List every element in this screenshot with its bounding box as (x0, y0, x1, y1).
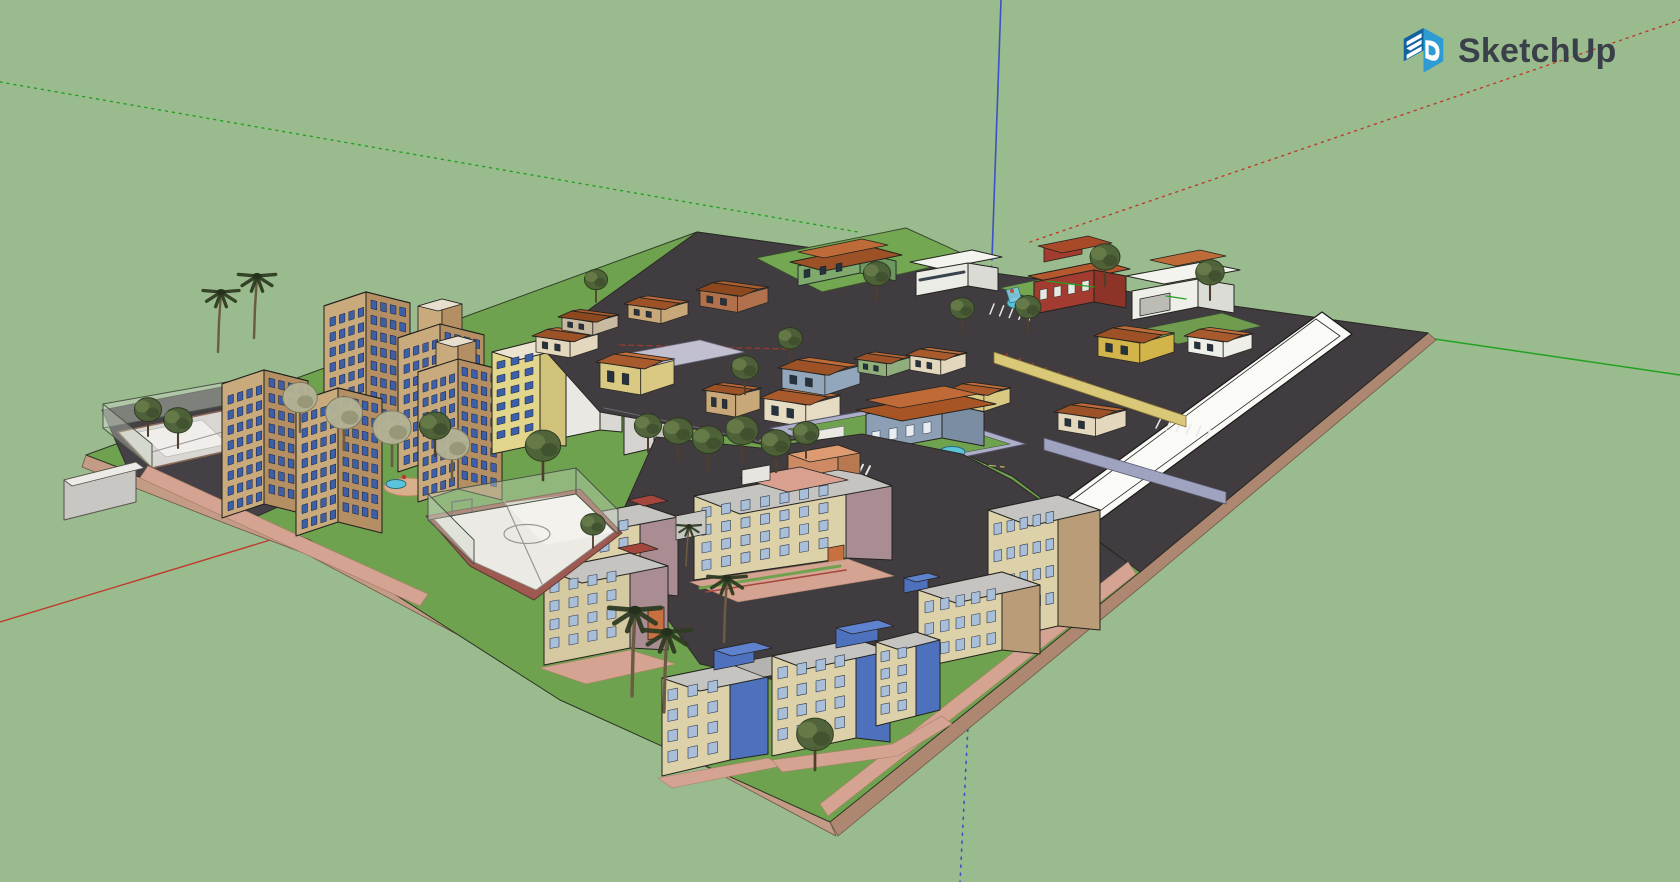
tower-windows (353, 490, 359, 500)
tree-shade (146, 408, 159, 418)
tower-windows (472, 473, 478, 483)
block-windows (668, 688, 678, 701)
block-windows (780, 544, 789, 556)
block-windows (994, 522, 1002, 535)
tower-windows (269, 378, 275, 388)
block-windows (569, 596, 578, 608)
block-windows (800, 541, 809, 553)
tree-shade (1026, 305, 1038, 315)
tower-windows (371, 330, 377, 340)
block-windows (569, 633, 578, 645)
tower-windows (423, 397, 428, 407)
tower-windows (302, 473, 308, 483)
tower-windows (449, 403, 454, 413)
block-windows (702, 541, 711, 553)
tower-windows (288, 474, 294, 484)
tower-windows (330, 347, 336, 357)
tower-windows (339, 359, 345, 369)
house-window (568, 322, 573, 328)
house-window (707, 296, 713, 304)
block-windows (1033, 514, 1041, 527)
block-windows (702, 559, 711, 571)
palm-crown (661, 628, 672, 636)
tower-windows (371, 346, 377, 356)
tower-windows (423, 342, 429, 352)
tower-windows (279, 472, 285, 482)
tower-windows (339, 313, 345, 323)
house-window (646, 311, 651, 318)
block-windows (797, 703, 807, 716)
tower-windows (237, 482, 243, 492)
tower-windows (371, 361, 377, 371)
tower-windows (321, 437, 327, 447)
tower-windows (343, 472, 349, 482)
block-windows (819, 537, 828, 549)
tower-windows (353, 444, 359, 454)
tower-windows (247, 403, 253, 413)
red-house-windows (1054, 286, 1061, 297)
tower-windows (269, 484, 275, 494)
tower-windows (247, 434, 253, 444)
block-windows (668, 729, 678, 742)
axis-green-dotted (0, 82, 858, 232)
tower-windows (330, 377, 336, 387)
block-windows (800, 488, 809, 500)
water-slide-top (1010, 289, 1014, 293)
house-window (1078, 421, 1084, 430)
tower-windows (423, 357, 429, 367)
block-windows (1007, 547, 1015, 560)
tower-windows (311, 455, 317, 465)
block-windows (778, 707, 788, 720)
house-window (790, 375, 797, 385)
block-windows (688, 725, 698, 738)
house-window (622, 373, 629, 385)
tower-windows (362, 507, 368, 517)
tower-windows (256, 492, 262, 502)
block-windows (778, 687, 788, 700)
tower-windows (288, 489, 294, 499)
mansion-windows (923, 422, 931, 434)
tower-windows (390, 335, 396, 345)
tower-windows (279, 380, 285, 390)
block-windows (1033, 541, 1041, 554)
tower-windows (279, 426, 285, 436)
block-windows (588, 630, 597, 642)
tower-windows (432, 394, 437, 404)
playground-pool (386, 480, 406, 489)
block-windows (569, 578, 578, 590)
block-windows (588, 593, 597, 605)
tower-windows (247, 388, 253, 398)
tower-windows (481, 431, 487, 441)
tower-windows (462, 471, 468, 481)
block-windows (569, 615, 578, 627)
tower-windows (269, 408, 275, 418)
tower-windows (404, 348, 410, 358)
block-windows (898, 682, 907, 694)
tower-windows (472, 369, 478, 379)
tower-windows (441, 480, 446, 490)
tower-windows (390, 365, 396, 375)
house-window (579, 323, 584, 329)
tower-windows (481, 460, 487, 470)
block-windows (987, 610, 996, 623)
block-windows (780, 527, 789, 539)
tower-windows (237, 406, 243, 416)
tower-windows (237, 422, 243, 432)
tower-windows (390, 381, 396, 391)
block-windows (607, 589, 616, 601)
sketchup-wordmark: SketchUp (1458, 34, 1616, 68)
axis-blue-solid (992, 0, 1001, 258)
block-windows (722, 520, 731, 532)
dry-tree-shade (389, 425, 407, 439)
block-windows (816, 700, 826, 713)
block-windows (898, 699, 907, 711)
tower-windows (362, 446, 368, 456)
block-windows (722, 503, 731, 515)
tower-windows (353, 459, 359, 469)
tower-windows (404, 455, 410, 465)
block-windows (1046, 565, 1054, 578)
playground-slide (402, 475, 406, 479)
red-house-wall (1094, 270, 1126, 308)
sketchup-viewport[interactable]: SketchUp (0, 0, 1680, 882)
tower-windows (269, 439, 275, 449)
tower-windows (237, 437, 243, 447)
tower-windows (339, 374, 345, 384)
tower-windows (372, 509, 378, 519)
tower-windows (288, 443, 294, 453)
tower-windows (302, 488, 308, 498)
block-windows (819, 485, 828, 497)
tower-windows (288, 428, 294, 438)
tower-windows (288, 459, 294, 469)
tower-windows (372, 479, 378, 489)
tower-windows (423, 486, 428, 496)
tower-windows (311, 409, 317, 419)
tower-windows (256, 385, 262, 395)
block-windows (1046, 511, 1054, 524)
block-windows (898, 664, 907, 676)
tower-windows (256, 446, 262, 456)
tower-windows (353, 429, 359, 439)
block-windows (956, 638, 965, 651)
tower-windows (343, 487, 349, 497)
mansion-windows (889, 428, 897, 440)
block-windows (550, 600, 559, 612)
palm-crown (217, 289, 225, 295)
tower-windows (358, 322, 364, 332)
tower-windows (339, 328, 345, 338)
block-windows (708, 721, 718, 734)
tower-windows (472, 414, 478, 424)
block-windows (925, 622, 934, 635)
house-window (1207, 344, 1213, 352)
block-windows (668, 709, 678, 722)
tower-windows (358, 338, 364, 348)
tower-windows (491, 463, 497, 473)
block-windows (708, 742, 718, 755)
block-windows (941, 597, 950, 610)
tree-shade (646, 424, 659, 434)
tower-windows (237, 452, 243, 462)
tower-windows (343, 502, 349, 512)
block-windows (588, 574, 597, 586)
tower-windows (311, 485, 317, 495)
tower-windows (472, 443, 478, 453)
tower-windows (362, 416, 368, 426)
tower-windows (321, 482, 327, 492)
block-windows (741, 499, 750, 511)
red-house-windows (1040, 289, 1047, 300)
block-windows (688, 746, 698, 759)
block-windows (668, 750, 678, 763)
tower-windows (441, 465, 446, 475)
block-windows (816, 679, 826, 692)
tower-windows (269, 469, 275, 479)
house-window (634, 309, 639, 316)
tower-windows (449, 388, 454, 398)
tower-windows (372, 464, 378, 474)
tower-windows (371, 315, 377, 325)
tower-windows (330, 331, 336, 341)
tower-windows (330, 479, 336, 489)
block-windows (619, 520, 628, 532)
sketchup-logo: SketchUp (1400, 26, 1616, 75)
tower-windows (481, 386, 487, 396)
tower-windows (472, 399, 478, 409)
block-windows (761, 548, 770, 560)
block-windows (1046, 592, 1054, 605)
house-window (874, 365, 879, 371)
tower-windows (362, 477, 368, 487)
tree-shade (541, 443, 558, 457)
palm-crown (723, 575, 732, 581)
green-house-windows (820, 266, 826, 275)
tower-windows (371, 376, 377, 386)
tower-windows (311, 500, 317, 510)
block-windows (741, 517, 750, 529)
tower-windows (441, 377, 446, 387)
tower-windows (330, 449, 336, 459)
tree-shade (176, 418, 189, 429)
tower-windows (381, 348, 387, 358)
block-windows (722, 538, 731, 550)
tower-windows (247, 464, 253, 474)
tower-windows (330, 464, 336, 474)
tower-windows (404, 439, 410, 449)
tower-windows (302, 427, 308, 437)
house-window (720, 298, 726, 306)
tower-windows (321, 513, 327, 523)
block-windows (816, 659, 826, 672)
block-windows (987, 588, 996, 601)
tower-windows (472, 384, 478, 394)
tower-windows (247, 419, 253, 429)
tower-windows (390, 305, 396, 315)
block-windows (588, 611, 597, 623)
tower-windows (362, 431, 368, 441)
tree-shade (813, 732, 830, 746)
tree-shade (774, 441, 788, 452)
palm-crown (686, 524, 692, 528)
palm-crown (253, 273, 262, 279)
tower-windows (358, 307, 364, 317)
tree-shade (592, 522, 604, 531)
house-window (1106, 343, 1113, 353)
block-windows (835, 675, 845, 688)
block-windows (780, 492, 789, 504)
block-windows (780, 509, 789, 521)
tower-windows (462, 397, 468, 407)
block-windows (1020, 517, 1028, 530)
house-window (863, 364, 868, 370)
tower-windows (237, 391, 243, 401)
tower-windows (311, 516, 317, 526)
tower-windows (279, 441, 285, 451)
block-windows (819, 520, 828, 532)
block-windows (835, 696, 845, 709)
tower-windows (381, 363, 387, 373)
block-windows (688, 705, 698, 718)
tree-shade (961, 306, 973, 315)
tower-windows (228, 394, 234, 404)
dry-tree-shade (297, 395, 313, 408)
tower-windows (381, 302, 387, 312)
block-windows (1046, 538, 1054, 551)
house-window (1121, 345, 1128, 355)
tower-windows (302, 443, 308, 453)
tower-windows (247, 449, 253, 459)
tower-windows (349, 356, 355, 366)
tower-windows (423, 442, 428, 452)
block-windows (550, 618, 559, 630)
house-window (927, 362, 932, 369)
tower-windows (353, 474, 359, 484)
tower-windows (321, 452, 327, 462)
model-viewport-3d-scene[interactable] (0, 0, 1680, 882)
white-house-wall (968, 263, 998, 291)
block-windows (1033, 568, 1041, 581)
tower-windows (321, 421, 327, 431)
tree-shade (789, 336, 801, 345)
tree-shade (743, 366, 756, 376)
tower-windows (358, 368, 364, 378)
block-windows (800, 523, 809, 535)
block-windows (881, 685, 890, 697)
tower-windows (353, 505, 359, 515)
tower-windows (372, 494, 378, 504)
house-window (805, 378, 812, 388)
block-windows (800, 506, 809, 518)
tree-shade (875, 272, 888, 282)
tower-windows (256, 461, 262, 471)
house-window (787, 408, 794, 418)
axis-red-solid (0, 531, 300, 622)
tower-windows (330, 510, 336, 520)
tower-windows (330, 494, 336, 504)
tower-windows (228, 470, 234, 480)
tower-windows (269, 424, 275, 434)
block-windows (972, 635, 981, 648)
block-windows (761, 531, 770, 543)
block-windows (778, 728, 788, 741)
green-house-windows (836, 263, 842, 272)
tower-windows (321, 467, 327, 477)
tree-shade (433, 423, 448, 435)
block-windows (941, 619, 950, 632)
house-window (772, 405, 779, 415)
block-windows (607, 571, 616, 583)
tower-windows (423, 456, 428, 466)
tree-shade (676, 429, 690, 440)
house-window (542, 342, 548, 350)
tower-windows (330, 434, 336, 444)
tower-windows (311, 440, 317, 450)
tower-windows (247, 495, 253, 505)
block-windows (688, 684, 698, 697)
house-window (711, 397, 716, 407)
block-windows (607, 626, 616, 638)
tower-windows (400, 322, 406, 332)
tower-windows (302, 503, 308, 513)
house-window (916, 360, 921, 367)
block-windows (972, 591, 981, 604)
tower-windows (381, 333, 387, 343)
block-windows (797, 683, 807, 696)
tower-windows (432, 468, 437, 478)
tower-windows (339, 344, 345, 354)
tower-windows (256, 431, 262, 441)
tower-windows (269, 393, 275, 403)
tower-windows (228, 485, 234, 495)
tower-windows (449, 374, 454, 384)
block-windows (741, 552, 750, 564)
tower-windows (349, 371, 355, 381)
tower-windows (237, 498, 243, 508)
tower-windows (256, 416, 262, 426)
tower-windows (362, 401, 368, 411)
tower-windows (279, 411, 285, 421)
tower-windows (330, 316, 336, 326)
tower-windows (228, 425, 234, 435)
block-windows (778, 666, 788, 679)
tower-windows (381, 378, 387, 388)
tower-windows (228, 409, 234, 419)
tower-windows (349, 341, 355, 351)
block-windows (956, 594, 965, 607)
tower-windows (441, 391, 446, 401)
tower-windows (269, 454, 275, 464)
palm-crown (629, 606, 641, 615)
block-windows (708, 680, 718, 693)
tower-windows (472, 429, 478, 439)
tower-windows (302, 458, 308, 468)
block-windows (898, 647, 907, 659)
tower-windows (349, 325, 355, 335)
tower-windows (472, 458, 478, 468)
tower-windows (413, 345, 419, 355)
tower-windows (404, 394, 410, 404)
tower-windows (390, 320, 396, 330)
tower-windows (288, 413, 294, 423)
house-window (555, 344, 561, 352)
tower-windows (279, 456, 285, 466)
tower-windows (404, 363, 410, 373)
tower-windows (358, 383, 364, 393)
